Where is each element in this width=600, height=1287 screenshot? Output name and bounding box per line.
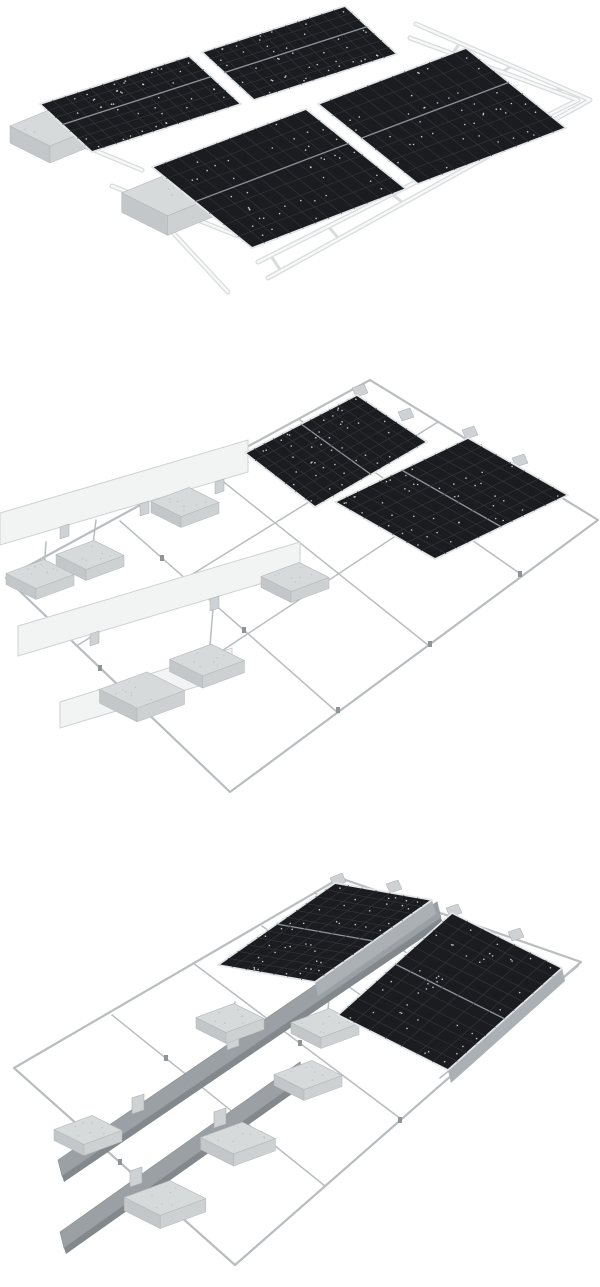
pdot: [272, 147, 274, 149]
pdot: [345, 502, 347, 504]
pdot: [272, 80, 274, 82]
bspeck: [196, 504, 197, 505]
pdot: [340, 424, 342, 426]
pdot: [318, 431, 320, 433]
pdot: [389, 479, 391, 481]
bspeck: [151, 699, 152, 700]
pdot: [489, 953, 491, 955]
pdot: [522, 509, 524, 511]
bspeck: [264, 1138, 265, 1139]
pdot: [123, 139, 125, 141]
pdot: [221, 48, 223, 50]
render-1-canvas: [0, 0, 600, 330]
pdot: [247, 192, 249, 194]
bspeck: [122, 689, 123, 690]
pdot: [269, 945, 271, 947]
pdot: [409, 144, 411, 146]
pdot: [402, 905, 404, 907]
pdot: [457, 1025, 459, 1027]
pdot: [113, 103, 115, 105]
pdot: [426, 536, 428, 538]
pdot: [236, 45, 238, 47]
pdot: [474, 103, 476, 105]
pdot: [336, 921, 338, 923]
pdot: [325, 195, 327, 197]
bspeck: [130, 692, 131, 693]
pdot: [320, 157, 322, 159]
bspeck: [47, 572, 48, 573]
pdot: [274, 952, 276, 954]
pdot: [347, 427, 349, 429]
pdot: [386, 903, 388, 905]
pdot: [192, 179, 194, 181]
pdot: [402, 533, 404, 535]
pdot: [352, 61, 354, 63]
pdot: [369, 910, 371, 912]
pdot: [322, 129, 324, 131]
pdot: [427, 68, 429, 70]
pdot: [233, 178, 235, 180]
pdot: [305, 968, 307, 970]
rail-clamp: [242, 627, 246, 633]
pdot: [354, 496, 356, 498]
pdot: [479, 961, 481, 963]
pdot: [424, 1052, 426, 1054]
pdot: [377, 462, 379, 464]
pdot: [293, 484, 295, 486]
pdot: [292, 456, 294, 458]
pdot: [381, 188, 383, 190]
bspeck: [291, 577, 292, 578]
pdot: [323, 419, 325, 421]
pdot: [354, 152, 356, 154]
pdot: [388, 525, 390, 527]
pdot: [228, 160, 230, 162]
pdot: [161, 113, 163, 115]
render-2-canvas: [0, 330, 600, 820]
pdot: [473, 123, 475, 125]
pdot: [361, 60, 363, 62]
bspeck: [135, 687, 136, 688]
pdot: [478, 135, 480, 137]
pdot: [304, 33, 306, 35]
bspeck: [165, 1186, 166, 1187]
pdot: [533, 134, 535, 136]
pdot: [389, 136, 391, 138]
bspeck: [237, 1009, 238, 1010]
pdot: [120, 91, 122, 93]
bspeck: [242, 1133, 243, 1134]
bspeck: [314, 1071, 315, 1072]
pdot: [349, 119, 351, 121]
pdot: [478, 68, 480, 70]
bspeck: [131, 695, 132, 696]
bspeck: [194, 661, 195, 662]
pdot: [243, 51, 245, 53]
pdot: [355, 924, 357, 926]
bspeck: [275, 575, 276, 576]
pdot: [511, 103, 513, 105]
pdot: [363, 30, 365, 32]
rail-clamp: [298, 1040, 302, 1046]
bspeck: [85, 560, 86, 561]
pdot: [86, 94, 88, 96]
pdot: [180, 71, 182, 73]
pdot: [461, 110, 463, 112]
pdot: [242, 82, 244, 84]
pdot: [291, 445, 293, 447]
pdot: [86, 138, 88, 140]
bspeck: [82, 1122, 83, 1123]
pdot: [497, 141, 499, 143]
rear-leg-bracket: [398, 408, 414, 421]
pdot: [308, 146, 310, 148]
pdot: [314, 200, 316, 202]
pdot: [442, 978, 444, 980]
render-assembled-array[interactable]: [0, 0, 600, 330]
pdot: [317, 64, 319, 66]
pdot: [318, 970, 320, 972]
pdot: [338, 407, 340, 409]
pdot: [471, 1033, 473, 1035]
pdot: [476, 1038, 478, 1040]
pdot: [359, 116, 361, 118]
pdot: [417, 901, 419, 903]
pdot: [519, 992, 521, 994]
pdot: [315, 475, 317, 477]
pdot: [336, 139, 338, 141]
pdot: [220, 60, 222, 62]
pdot: [343, 905, 345, 907]
bspeck: [172, 187, 173, 188]
pdot: [525, 103, 527, 105]
pdot: [263, 450, 265, 452]
pdot: [481, 472, 483, 474]
pdot: [505, 112, 507, 114]
pdot: [262, 234, 264, 236]
pdot: [223, 97, 225, 99]
bspeck: [169, 498, 170, 499]
pdot: [320, 962, 322, 964]
pdot: [497, 944, 499, 946]
pdot: [172, 82, 174, 84]
pdot: [341, 447, 343, 449]
pdot: [300, 973, 302, 975]
pdot: [324, 159, 326, 161]
pdot: [252, 225, 254, 227]
pdot: [116, 90, 118, 92]
bspeck: [306, 1067, 307, 1068]
pdot: [231, 196, 233, 198]
bspeck: [103, 1133, 104, 1134]
bspeck: [224, 1023, 225, 1024]
pdot: [419, 970, 421, 972]
pdot: [444, 1061, 446, 1063]
pdot: [406, 1004, 408, 1006]
pdot: [249, 209, 251, 211]
pdot: [386, 481, 388, 483]
pdot: [496, 108, 498, 110]
bspeck: [242, 1023, 243, 1024]
pdot: [284, 205, 286, 207]
pdot: [406, 1028, 408, 1030]
bspeck: [25, 129, 26, 130]
pdot: [188, 62, 190, 64]
pdot: [329, 488, 331, 490]
pdot: [417, 1019, 419, 1021]
pdot: [314, 950, 316, 952]
pdot: [388, 432, 390, 434]
bspeck: [91, 546, 92, 547]
bspeck: [125, 691, 126, 692]
pdot: [157, 68, 159, 70]
bspeck: [250, 1134, 251, 1135]
pdot: [355, 129, 357, 131]
pdot: [310, 462, 312, 464]
pdot: [499, 1009, 501, 1011]
pdot: [365, 926, 367, 928]
bspeck: [27, 568, 28, 569]
bspeck: [92, 1122, 93, 1123]
pdot: [316, 960, 318, 962]
bspeck: [339, 1022, 340, 1023]
pdot: [419, 121, 421, 123]
pdot: [436, 977, 438, 979]
bspeck: [172, 1204, 173, 1205]
pdot: [138, 113, 140, 115]
pdot: [305, 149, 307, 151]
pdot: [466, 955, 468, 957]
pdot: [436, 935, 438, 937]
pdot: [332, 415, 334, 417]
bspeck: [183, 506, 184, 507]
bspeck: [328, 1016, 329, 1017]
pdot: [305, 943, 307, 945]
wind-deflector: [0, 440, 248, 545]
pdot: [197, 161, 199, 163]
pdot: [454, 496, 456, 498]
pdot: [462, 1046, 464, 1048]
bspeck: [320, 1031, 321, 1032]
pdot: [265, 935, 267, 937]
bspeck: [101, 1127, 102, 1128]
pdot: [328, 70, 330, 72]
pdot: [293, 138, 295, 140]
pdot: [527, 131, 529, 133]
pdot: [258, 957, 260, 959]
front-rail-core: [165, 224, 228, 292]
rail-clamp: [164, 1055, 168, 1061]
pdot: [535, 111, 537, 113]
pdot: [214, 165, 216, 167]
pdot: [341, 484, 343, 486]
pdot: [323, 467, 325, 469]
bspeck: [41, 564, 42, 565]
pdot: [111, 103, 113, 105]
pdot: [496, 92, 498, 94]
pdot: [389, 456, 391, 458]
pdot: [329, 437, 331, 439]
pdot: [344, 502, 346, 504]
bspeck: [241, 1016, 242, 1017]
pdot: [300, 200, 302, 202]
pdot: [457, 92, 459, 94]
bspeck: [56, 570, 57, 571]
pdot: [436, 981, 438, 983]
pdot: [281, 928, 283, 930]
pdot: [226, 65, 228, 67]
pdot: [411, 529, 413, 531]
pdot: [206, 170, 208, 172]
bspeck: [217, 1140, 218, 1141]
pdot: [74, 98, 76, 100]
pdot: [285, 75, 287, 77]
pdot: [379, 930, 381, 932]
pdot: [446, 167, 448, 169]
pdot: [377, 55, 379, 57]
pdot: [265, 449, 267, 451]
pdot: [417, 544, 419, 546]
pdot: [397, 162, 399, 164]
pdot: [511, 960, 513, 962]
rear-leg-bracket: [508, 928, 524, 941]
pdot: [142, 83, 144, 85]
render-tilt-up-frame[interactable]: [0, 820, 600, 1287]
pdot: [310, 166, 312, 168]
pdot: [259, 39, 261, 41]
bspeck: [114, 554, 115, 555]
pdot: [464, 124, 466, 126]
pdot: [492, 955, 494, 957]
pdot: [399, 1012, 401, 1014]
pdot: [311, 446, 313, 448]
pdot: [307, 131, 309, 133]
bspeck: [177, 501, 178, 502]
pdot: [341, 410, 343, 412]
bspeck: [175, 1187, 176, 1188]
bspeck: [75, 1126, 76, 1127]
pdot: [437, 102, 439, 104]
bspeck: [161, 1203, 162, 1204]
bspeck: [278, 573, 279, 574]
pdot: [331, 450, 333, 452]
ballast-block-layer: [54, 1004, 359, 1229]
pdot: [503, 500, 505, 502]
pdot: [388, 898, 390, 900]
pdot: [214, 89, 216, 91]
rail-clamp: [428, 641, 432, 647]
render-frame-with-deflectors[interactable]: [0, 330, 600, 820]
pdot: [451, 944, 453, 946]
pdot: [335, 61, 337, 63]
pdot: [339, 887, 341, 889]
bspeck: [213, 661, 214, 662]
pdot: [310, 968, 312, 970]
solar-panel-array: [40, 6, 566, 248]
pdot: [439, 488, 441, 490]
pdot: [448, 97, 450, 99]
ladder-rung: [392, 194, 403, 203]
pdot: [365, 31, 367, 33]
pdot: [495, 518, 497, 520]
pdot: [305, 23, 307, 25]
pdot: [406, 900, 408, 902]
pdot: [358, 422, 360, 424]
ladder-rung: [502, 66, 512, 72]
bspeck: [168, 188, 169, 189]
bspeck: [295, 581, 296, 582]
pdot: [408, 113, 410, 115]
pdot: [338, 38, 340, 40]
pdot: [98, 146, 100, 148]
pdot: [530, 958, 532, 960]
pdot: [418, 992, 420, 994]
bspeck: [322, 1075, 323, 1076]
bspeck: [34, 131, 35, 132]
pdot: [339, 65, 341, 67]
rail-clamp: [398, 1117, 402, 1123]
pdot: [339, 157, 341, 159]
pdot: [77, 112, 79, 114]
pdot: [483, 959, 485, 961]
bspeck: [217, 657, 218, 658]
pdot: [286, 973, 288, 975]
pdot: [365, 454, 367, 456]
pdot: [493, 505, 495, 507]
pdot: [364, 59, 366, 61]
pdot: [382, 989, 384, 991]
pdot: [388, 923, 390, 925]
pdot: [314, 462, 316, 464]
pdot: [257, 969, 259, 971]
pdot: [438, 976, 440, 978]
pdot: [154, 107, 156, 109]
pdot: [453, 483, 455, 485]
pdot: [165, 122, 167, 124]
pdot: [510, 959, 512, 961]
ladder-rung: [271, 256, 281, 271]
pdot: [413, 144, 415, 146]
bspeck: [311, 1066, 312, 1067]
bspeck: [183, 510, 184, 511]
bspeck: [311, 574, 312, 575]
pdot: [285, 947, 287, 949]
pdot: [323, 52, 325, 54]
bspeck: [217, 665, 218, 666]
pdot: [458, 522, 460, 524]
pdot: [376, 175, 378, 177]
bspeck: [205, 502, 206, 503]
bspeck: [90, 1132, 91, 1133]
pdot: [465, 477, 467, 479]
pdot: [463, 138, 465, 140]
pdot: [289, 434, 291, 436]
pdot: [513, 137, 515, 139]
rail-clamp: [518, 571, 522, 577]
bspeck: [31, 573, 32, 574]
bspeck: [34, 566, 35, 567]
pdot: [339, 923, 341, 925]
pdot: [354, 899, 356, 901]
pdot: [466, 57, 468, 59]
pdot: [276, 124, 278, 126]
pdot: [417, 484, 419, 486]
bspeck: [233, 1141, 234, 1142]
rear-leg-bracket: [386, 880, 402, 893]
pdot: [161, 68, 163, 70]
pdot: [426, 988, 428, 990]
pdot: [279, 213, 281, 215]
